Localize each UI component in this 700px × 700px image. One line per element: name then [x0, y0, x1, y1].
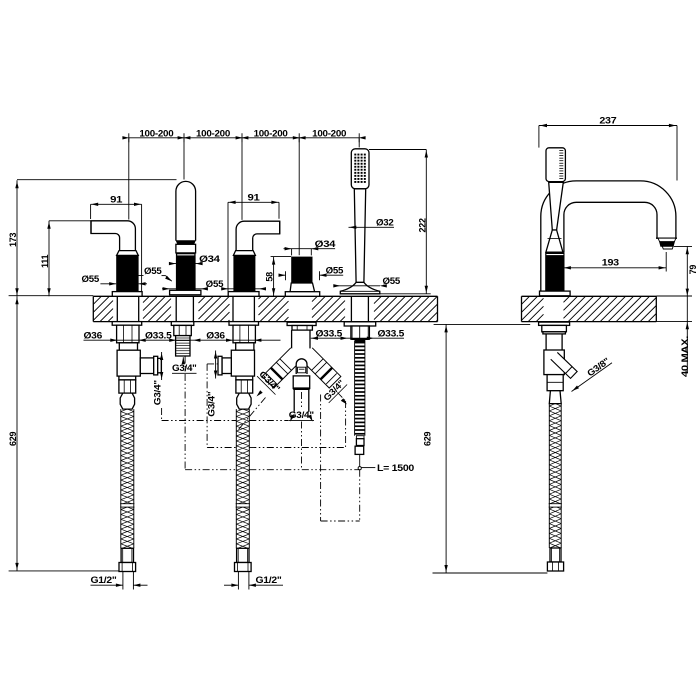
svg-text:G3/4": G3/4": [207, 392, 217, 417]
svg-text:Ø55: Ø55: [82, 274, 100, 284]
svg-text:100-200: 100-200: [196, 129, 230, 139]
svg-text:Ø34: Ø34: [199, 254, 220, 264]
svg-text:Ø32: Ø32: [376, 217, 394, 227]
svg-text:G3/4": G3/4": [172, 363, 197, 373]
svg-text:Ø36: Ø36: [84, 330, 103, 340]
svg-text:Ø55: Ø55: [383, 276, 401, 286]
svg-text:629: 629: [8, 431, 18, 446]
svg-text:Ø55: Ø55: [144, 266, 162, 276]
svg-text:G3/4": G3/4": [153, 380, 163, 405]
svg-text:Ø36: Ø36: [206, 330, 225, 340]
svg-text:79: 79: [688, 265, 698, 275]
svg-text:91: 91: [248, 192, 260, 202]
svg-text:Ø34: Ø34: [315, 239, 336, 249]
svg-text:91: 91: [110, 194, 122, 204]
svg-text:Ø33.5: Ø33.5: [316, 329, 343, 339]
svg-text:G1/2": G1/2": [91, 575, 117, 585]
svg-text:629: 629: [423, 431, 433, 446]
svg-text:G1/2": G1/2": [256, 575, 282, 585]
svg-text:Ø55: Ø55: [326, 265, 344, 275]
svg-text:L= 1500: L= 1500: [377, 463, 414, 473]
svg-text:222: 222: [417, 218, 427, 233]
svg-text:111: 111: [40, 254, 50, 268]
svg-text:Ø33.5: Ø33.5: [378, 329, 405, 339]
svg-text:58: 58: [265, 272, 275, 282]
svg-text:173: 173: [8, 232, 18, 247]
svg-text:40 MAX.: 40 MAX.: [680, 336, 690, 377]
svg-text:100-200: 100-200: [254, 129, 288, 139]
svg-text:Ø33.5: Ø33.5: [145, 330, 172, 340]
svg-text:237: 237: [599, 116, 616, 126]
svg-text:Ø55: Ø55: [206, 279, 224, 289]
svg-text:193: 193: [602, 258, 619, 268]
svg-text:100-200: 100-200: [139, 129, 173, 139]
svg-text:100-200: 100-200: [312, 129, 346, 139]
